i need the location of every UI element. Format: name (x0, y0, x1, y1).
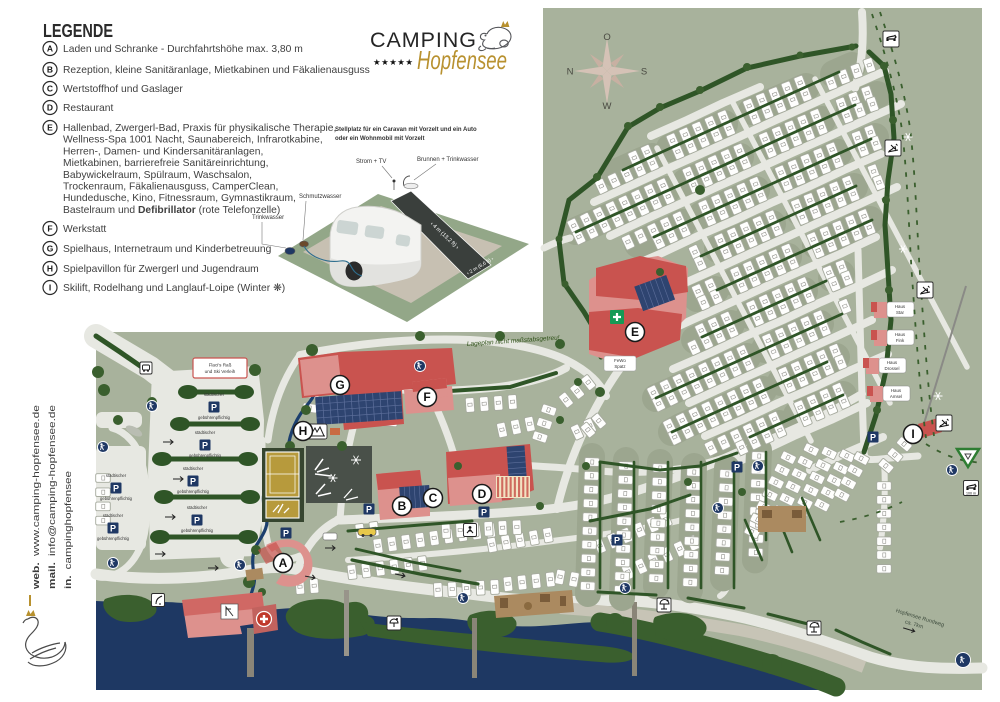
svg-text:S: S (641, 67, 647, 78)
svg-text:P: P (481, 508, 487, 518)
svg-text:I: I (49, 283, 51, 293)
svg-text:Bastelraum und Defibrillator (: Bastelraum und Defibrillator (rote Telef… (63, 205, 280, 216)
svg-text:LEGENDE: LEGENDE (43, 21, 113, 41)
svg-text:städtischer: städtischer (183, 466, 204, 471)
svg-text:Haus: Haus (891, 388, 902, 393)
svg-text:städtischer: städtischer (195, 430, 216, 435)
svg-text:H: H (47, 264, 53, 274)
svg-text:P: P (283, 529, 289, 539)
svg-text:★★★★★: ★★★★★ (373, 57, 413, 67)
svg-text:Wellness-Spa 1001 Nacht, Sauna: Wellness-Spa 1001 Nacht, Saunabereich, I… (63, 135, 323, 146)
svg-text:Haus: Haus (895, 304, 906, 309)
svg-text:gebührenpflichtig: gebührenpflichtig (181, 528, 214, 533)
svg-text:B: B (398, 499, 407, 513)
svg-text:P: P (614, 536, 620, 546)
svg-text:Trinkwasser: Trinkwasser (252, 215, 284, 221)
svg-text:gebührenpflichtig: gebührenpflichtig (189, 453, 222, 458)
svg-text:P: P (366, 505, 372, 515)
svg-text:P: P (110, 524, 116, 534)
svg-text:Mietkabinen, barrierefreie San: Mietkabinen, barrierefreie Sanitäreinric… (63, 158, 268, 169)
svg-text:Brunnen + Trinkwasser: Brunnen + Trinkwasser (417, 157, 479, 163)
svg-text:Haus: Haus (887, 360, 898, 365)
svg-text:D: D (478, 487, 487, 501)
svg-text:Herren-, Damen- und Kindersani: Herren-, Damen- und Kindersanitäranlagen… (63, 146, 263, 157)
svg-text:gebührenpflichtig: gebührenpflichtig (177, 489, 210, 494)
svg-text:P: P (211, 403, 217, 413)
svg-text:E: E (631, 325, 639, 339)
svg-text:Spielpavillon für Zwergerl und: Spielpavillon für Zwergerl und Jugendrau… (63, 264, 259, 275)
svg-text:Stellplatz für ein Caravan mit: Stellplatz für ein Caravan mit Vorzelt u… (335, 127, 477, 133)
svg-text:P: P (870, 433, 876, 443)
svg-text:P: P (202, 441, 208, 451)
svg-text:Strom + TV: Strom + TV (356, 159, 386, 165)
svg-text:A: A (47, 44, 53, 54)
svg-text:FeWo: FeWo (614, 358, 626, 363)
svg-text:P: P (190, 477, 196, 487)
svg-text:Restaurant: Restaurant (63, 103, 114, 114)
svg-text:O: O (603, 32, 610, 43)
svg-text:Spielhaus, Internetraum und Ki: Spielhaus, Internetraum und Kinderbetreu… (63, 244, 272, 255)
svg-text:C: C (47, 84, 53, 94)
svg-text:Star: Star (896, 310, 905, 315)
svg-text:D: D (47, 103, 53, 113)
svg-text:B: B (47, 65, 53, 75)
svg-text:F: F (423, 390, 430, 404)
svg-text:städtischer: städtischer (103, 513, 124, 518)
svg-text:P: P (194, 516, 200, 526)
svg-text:gebührenpflichtig: gebührenpflichtig (198, 415, 231, 420)
svg-text:Schmutzwasser: Schmutzwasser (299, 194, 341, 200)
svg-text:C: C (429, 491, 438, 505)
svg-text:Laden und Schranke - Durchfahr: Laden und Schranke - Durchfahrtshöhe max… (63, 44, 303, 55)
svg-text:G: G (47, 244, 54, 254)
svg-text:städtischer: städtischer (204, 392, 225, 397)
svg-text:Fink: Fink (896, 338, 905, 343)
svg-text:A: A (279, 556, 288, 570)
svg-text:Werkstatt: Werkstatt (63, 224, 106, 235)
svg-text:Trockenraum, Fäkalienausguss,: Trockenraum, Fäkalienausguss, CamperClea… (63, 182, 278, 193)
svg-text:F: F (47, 224, 52, 234)
svg-text:Babywickelraum, Spülraum, Wasc: Babywickelraum, Spülraum, Waschsalon, (63, 170, 252, 181)
svg-text:Wertstoffhof und Gaslager: Wertstoffhof und Gaslager (63, 84, 183, 95)
svg-text:P: P (734, 463, 740, 473)
svg-text:I: I (911, 427, 914, 441)
svg-text:Skilift, Rodelhang und Langlau: Skilift, Rodelhang und Langlauf-Loipe (W… (63, 283, 285, 294)
svg-text:Amsel: Amsel (890, 394, 902, 399)
svg-text:P: P (113, 484, 119, 494)
svg-text:Drossel: Drossel (885, 366, 900, 371)
svg-text:oder ein Wohnmobil mit Vorzelt: oder ein Wohnmobil mit Vorzelt (335, 136, 424, 142)
svg-text:Rezeption, kleine Sanitäranlag: Rezeption, kleine Sanitäranlage, Mietkab… (63, 65, 370, 76)
svg-text:web.www.camping-hopfensee.de: web.www.camping-hopfensee.de (31, 405, 42, 590)
svg-text:städtischer: städtischer (187, 505, 208, 510)
svg-text:Hundedusche, Kino, Fitnessraum: Hundedusche, Kino, Fitnessraum, Gymnasti… (63, 193, 296, 204)
svg-text:E: E (47, 123, 53, 133)
svg-text:Hallenbad, Zwergerl-Bad, Praxi: Hallenbad, Zwergerl-Bad, Praxis für phys… (63, 123, 336, 134)
svg-text:N: N (567, 67, 574, 78)
svg-text:H: H (299, 424, 308, 438)
svg-text:und Ski Verleih: und Ski Verleih (205, 369, 236, 374)
svg-text:städtischer: städtischer (106, 473, 127, 478)
svg-text:G: G (335, 378, 344, 392)
svg-text:100 m: 100 m (966, 492, 976, 496)
svg-text:Spatz: Spatz (614, 364, 625, 369)
svg-text:gebührenpflichtig: gebührenpflichtig (97, 536, 130, 541)
svg-text:W: W (603, 101, 612, 112)
svg-text:Haus: Haus (895, 332, 906, 337)
svg-text:Flaci's Raß: Flaci's Raß (209, 363, 232, 368)
svg-text:gebührenpflichtig: gebührenpflichtig (100, 496, 133, 501)
